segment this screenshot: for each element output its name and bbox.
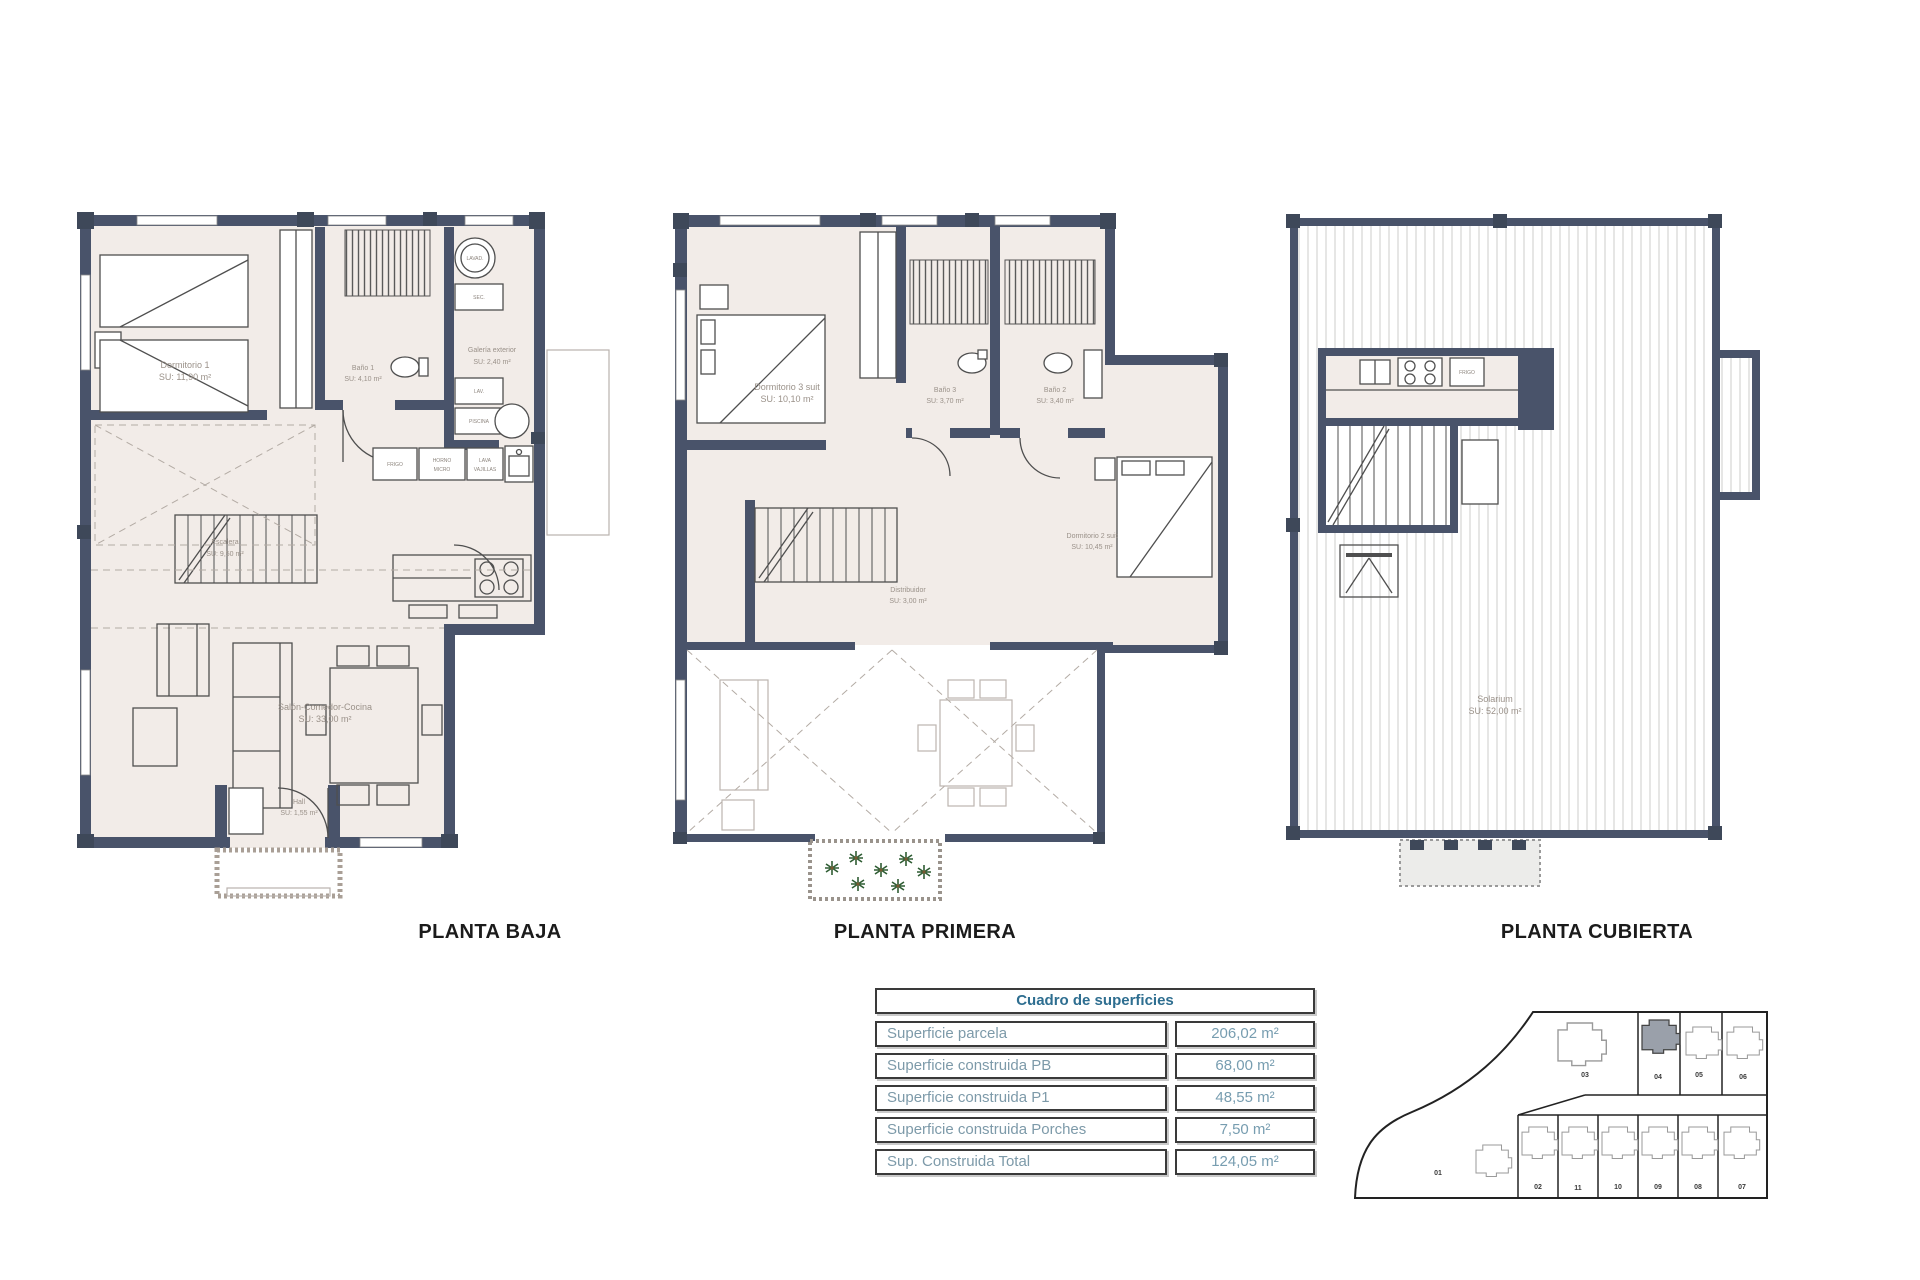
dishwasher-label-2: VAJILLAS [474,467,497,473]
room-area-bano3: SU: 3,70 m² [926,398,964,405]
bedroom1-furniture [95,230,312,412]
dryer-label: SEC. [473,295,485,301]
room-area-dormitorio3: SU: 10,10 m² [760,394,813,404]
room-label-bano3: Baño 3 [934,387,956,394]
row-label: Superficie parcela [875,1021,1167,1047]
table-row: Superficie construida PB 68,00 m² [875,1053,1315,1079]
plot-label: 04 [1654,1074,1662,1081]
fridge-label: FRIGO [387,462,403,468]
room-label-bano2: Baño 2 [1044,387,1066,394]
room-label-salon: Salón-Comedor-Cocina [278,702,372,712]
room-area-dormitorio1: SU: 11,90 m² [159,372,211,382]
room-area-salon: SU: 33,00 m² [298,714,351,724]
floor-plan-planta-cubierta: FRIGO Solarium SU: 52,00 m² [1280,200,1780,900]
room-label-dormitorio2: Dormitorio 2 suit [1067,533,1118,540]
dishwasher-label-1: LAVA [479,458,492,464]
room-area-bano2: SU: 3,40 m² [1036,398,1074,405]
plot-label: 01 [1434,1170,1442,1177]
oven-label-2: MICRO [434,467,451,473]
row-value: 7,50 m² [1175,1117,1315,1143]
room-label-hall: Hall [293,799,306,806]
title-planta-cubierta: PLANTA CUBIERTA [1477,921,1717,944]
row-value: 206,02 m² [1175,1021,1315,1047]
room-label-dormitorio3: Dormitorio 3 suit [754,382,820,392]
room-area-bano1: SU: 4,10 m² [344,376,382,383]
galeria-sink-label: LAV. [474,389,484,395]
title-planta-primera: PLANTA PRIMERA [805,921,1045,944]
title-planta-baja: PLANTA BAJA [370,921,610,944]
plot-label: 11 [1574,1185,1582,1192]
planter [810,841,940,899]
plot-label: 10 [1614,1184,1622,1191]
plot-label: 07 [1738,1184,1746,1191]
row-value: 48,55 m² [1175,1085,1315,1111]
highlighted-house-plot-04 [1642,1020,1680,1053]
oven-label-1: HORNO [433,458,452,464]
room-label-dormitorio1: Dormitorio 1 [160,360,209,370]
entry-porch [217,850,340,896]
surfaces-table: Cuadro de superficies Superficie parcela… [875,988,1315,1181]
plot-label: 03 [1581,1072,1589,1079]
room-area-hall: SU: 1,55 m² [280,810,318,817]
row-value: 124,05 m² [1175,1149,1315,1175]
table-row: Superficie construida P1 48,55 m² [875,1085,1315,1111]
table-row: Superficie parcela 206,02 m² [875,1021,1315,1047]
site-plan: 03 04 05 06 01 02 11 10 09 08 07 [1350,995,1810,1210]
plot-label: 05 [1695,1072,1703,1079]
row-value: 68,00 m² [1175,1053,1315,1079]
roof-kitchen: FRIGO [1318,348,1554,430]
room-area-dormitorio2: SU: 10,45 m² [1071,544,1113,551]
architectural-plan-sheet: Dormitorio 1 SU: 11,90 m² Baño 1 SU: 4,1… [0,0,1920,1280]
row-label: Sup. Construida Total [875,1149,1167,1175]
room-area-solarium: SU: 52,00 m² [1468,706,1521,716]
boiler-label: PISCINA [469,419,490,425]
room-label-distribuidor: Distribuidor [890,587,926,594]
table-row: Sup. Construida Total 124,05 m² [875,1149,1315,1175]
room-area-galeria: SU: 2,40 m² [473,359,511,366]
plot-label: 06 [1739,1074,1747,1081]
plot-label: 08 [1694,1184,1702,1191]
room-label-bano1: Baño 1 [352,365,374,372]
washer-label: LAVAD. [466,256,483,262]
row-label: Superficie construida PB [875,1053,1167,1079]
floor-plan-planta-baja: Dormitorio 1 SU: 11,90 m² Baño 1 SU: 4,1… [75,200,615,910]
room-area-escalera: SU: 9,50 m² [206,551,244,558]
table-row: Superficie construida Porches 7,50 m² [875,1117,1315,1143]
adjacent-porch-outline [547,350,609,535]
room-label-galeria: Galería exterior [468,347,517,354]
row-label: Superficie construida P1 [875,1085,1167,1111]
room-label-solarium: Solarium [1477,694,1513,704]
bottom-pergola [1400,840,1540,886]
kitchen-counter: FRIGO HORNO MICRO LAVA VAJILLAS [373,446,533,482]
surfaces-table-header: Cuadro de superficies [875,988,1315,1014]
plot-label: 09 [1654,1184,1662,1191]
row-label: Superficie construida Porches [875,1117,1167,1143]
room-area-distribuidor: SU: 3,00 m² [889,598,927,605]
terrace-void [687,650,1097,833]
right-balcony [1720,350,1760,500]
roof-fridge-label: FRIGO [1459,370,1475,376]
floor-plan-planta-primera: Dormitorio 3 suit SU: 10,10 m² Baño 3 SU… [660,200,1260,910]
plot-label: 02 [1534,1184,1542,1191]
